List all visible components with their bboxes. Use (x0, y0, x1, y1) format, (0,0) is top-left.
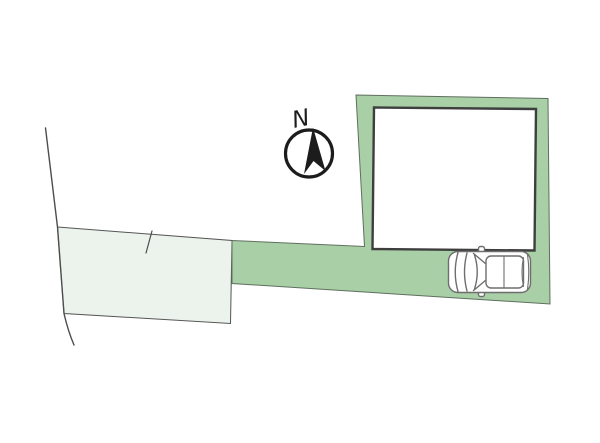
site-plan-canvas: N (0, 0, 600, 443)
building-footprint (373, 108, 537, 251)
site-plan-drawing: N (0, 0, 600, 443)
car-cabin (486, 256, 524, 288)
parcel-lot-light (58, 227, 233, 324)
car-top-view-icon (449, 247, 531, 297)
